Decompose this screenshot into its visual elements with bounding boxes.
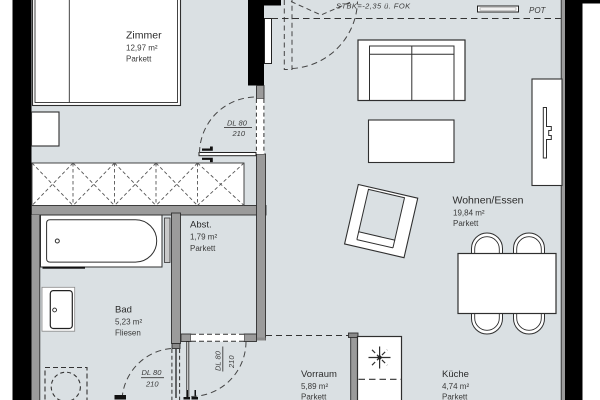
svg-text:POT: POT bbox=[529, 6, 547, 15]
svg-text:12,97 m²: 12,97 m² bbox=[126, 44, 158, 53]
svg-text:DL 80: DL 80 bbox=[142, 368, 163, 377]
svg-text:STBK=-2,35 ü. FOK: STBK=-2,35 ü. FOK bbox=[336, 2, 411, 11]
svg-text:Fliesen: Fliesen bbox=[115, 329, 141, 338]
svg-text:DL 80: DL 80 bbox=[227, 119, 248, 128]
svg-text:Parkett: Parkett bbox=[126, 55, 152, 64]
svg-text:Parkett: Parkett bbox=[301, 393, 327, 400]
svg-text:5,89 m²: 5,89 m² bbox=[301, 382, 328, 391]
svg-text:4,74 m²: 4,74 m² bbox=[442, 382, 469, 391]
svg-text:Vorraum: Vorraum bbox=[301, 369, 337, 380]
svg-text:210: 210 bbox=[227, 355, 236, 369]
svg-text:210: 210 bbox=[145, 380, 159, 389]
svg-text:19,84 m²: 19,84 m² bbox=[453, 209, 485, 218]
svg-text:Zimmer: Zimmer bbox=[126, 30, 162, 42]
svg-text:1,79 m²: 1,79 m² bbox=[190, 233, 217, 242]
svg-text:210: 210 bbox=[232, 129, 246, 138]
svg-text:Küche: Küche bbox=[442, 369, 469, 380]
svg-text:Wohnen/Essen: Wohnen/Essen bbox=[453, 195, 524, 207]
svg-text:DL 80: DL 80 bbox=[214, 350, 223, 371]
svg-text:Parkett: Parkett bbox=[453, 219, 479, 228]
svg-text:Bad: Bad bbox=[115, 305, 132, 316]
svg-text:Parkett: Parkett bbox=[442, 393, 468, 400]
svg-text:Abst.: Abst. bbox=[190, 220, 212, 231]
svg-text:Parkett: Parkett bbox=[190, 244, 216, 253]
svg-text:5,23 m²: 5,23 m² bbox=[115, 318, 142, 327]
